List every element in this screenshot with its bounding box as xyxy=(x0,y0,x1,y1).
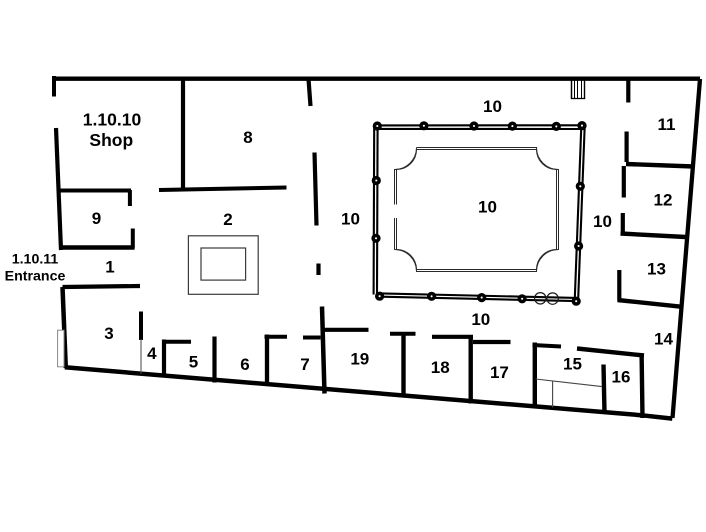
svg-text:10: 10 xyxy=(593,212,612,231)
svg-text:12: 12 xyxy=(654,191,673,210)
svg-text:3: 3 xyxy=(104,324,113,343)
svg-text:7: 7 xyxy=(300,355,309,374)
svg-text:2: 2 xyxy=(223,210,232,229)
svg-text:14: 14 xyxy=(654,330,673,349)
svg-text:1: 1 xyxy=(105,258,114,277)
svg-text:19: 19 xyxy=(350,349,369,368)
svg-text:10: 10 xyxy=(478,198,497,217)
svg-text:5: 5 xyxy=(189,352,198,371)
svg-text:8: 8 xyxy=(243,128,252,147)
svg-text:Entrance: Entrance xyxy=(5,269,66,285)
svg-text:10: 10 xyxy=(483,97,502,116)
svg-text:10: 10 xyxy=(341,209,360,228)
svg-text:9: 9 xyxy=(92,209,101,228)
svg-text:17: 17 xyxy=(490,363,509,382)
svg-text:4: 4 xyxy=(147,344,157,363)
svg-text:11: 11 xyxy=(658,115,676,134)
svg-text:1.10.10: 1.10.10 xyxy=(83,109,142,129)
svg-text:15: 15 xyxy=(563,355,582,374)
svg-text:10: 10 xyxy=(471,310,490,329)
svg-text:16: 16 xyxy=(612,367,631,386)
svg-text:1.10.11: 1.10.11 xyxy=(12,252,59,268)
svg-text:13: 13 xyxy=(647,260,666,279)
svg-text:18: 18 xyxy=(431,358,450,377)
svg-text:6: 6 xyxy=(240,355,249,374)
svg-text:Shop: Shop xyxy=(89,130,133,150)
